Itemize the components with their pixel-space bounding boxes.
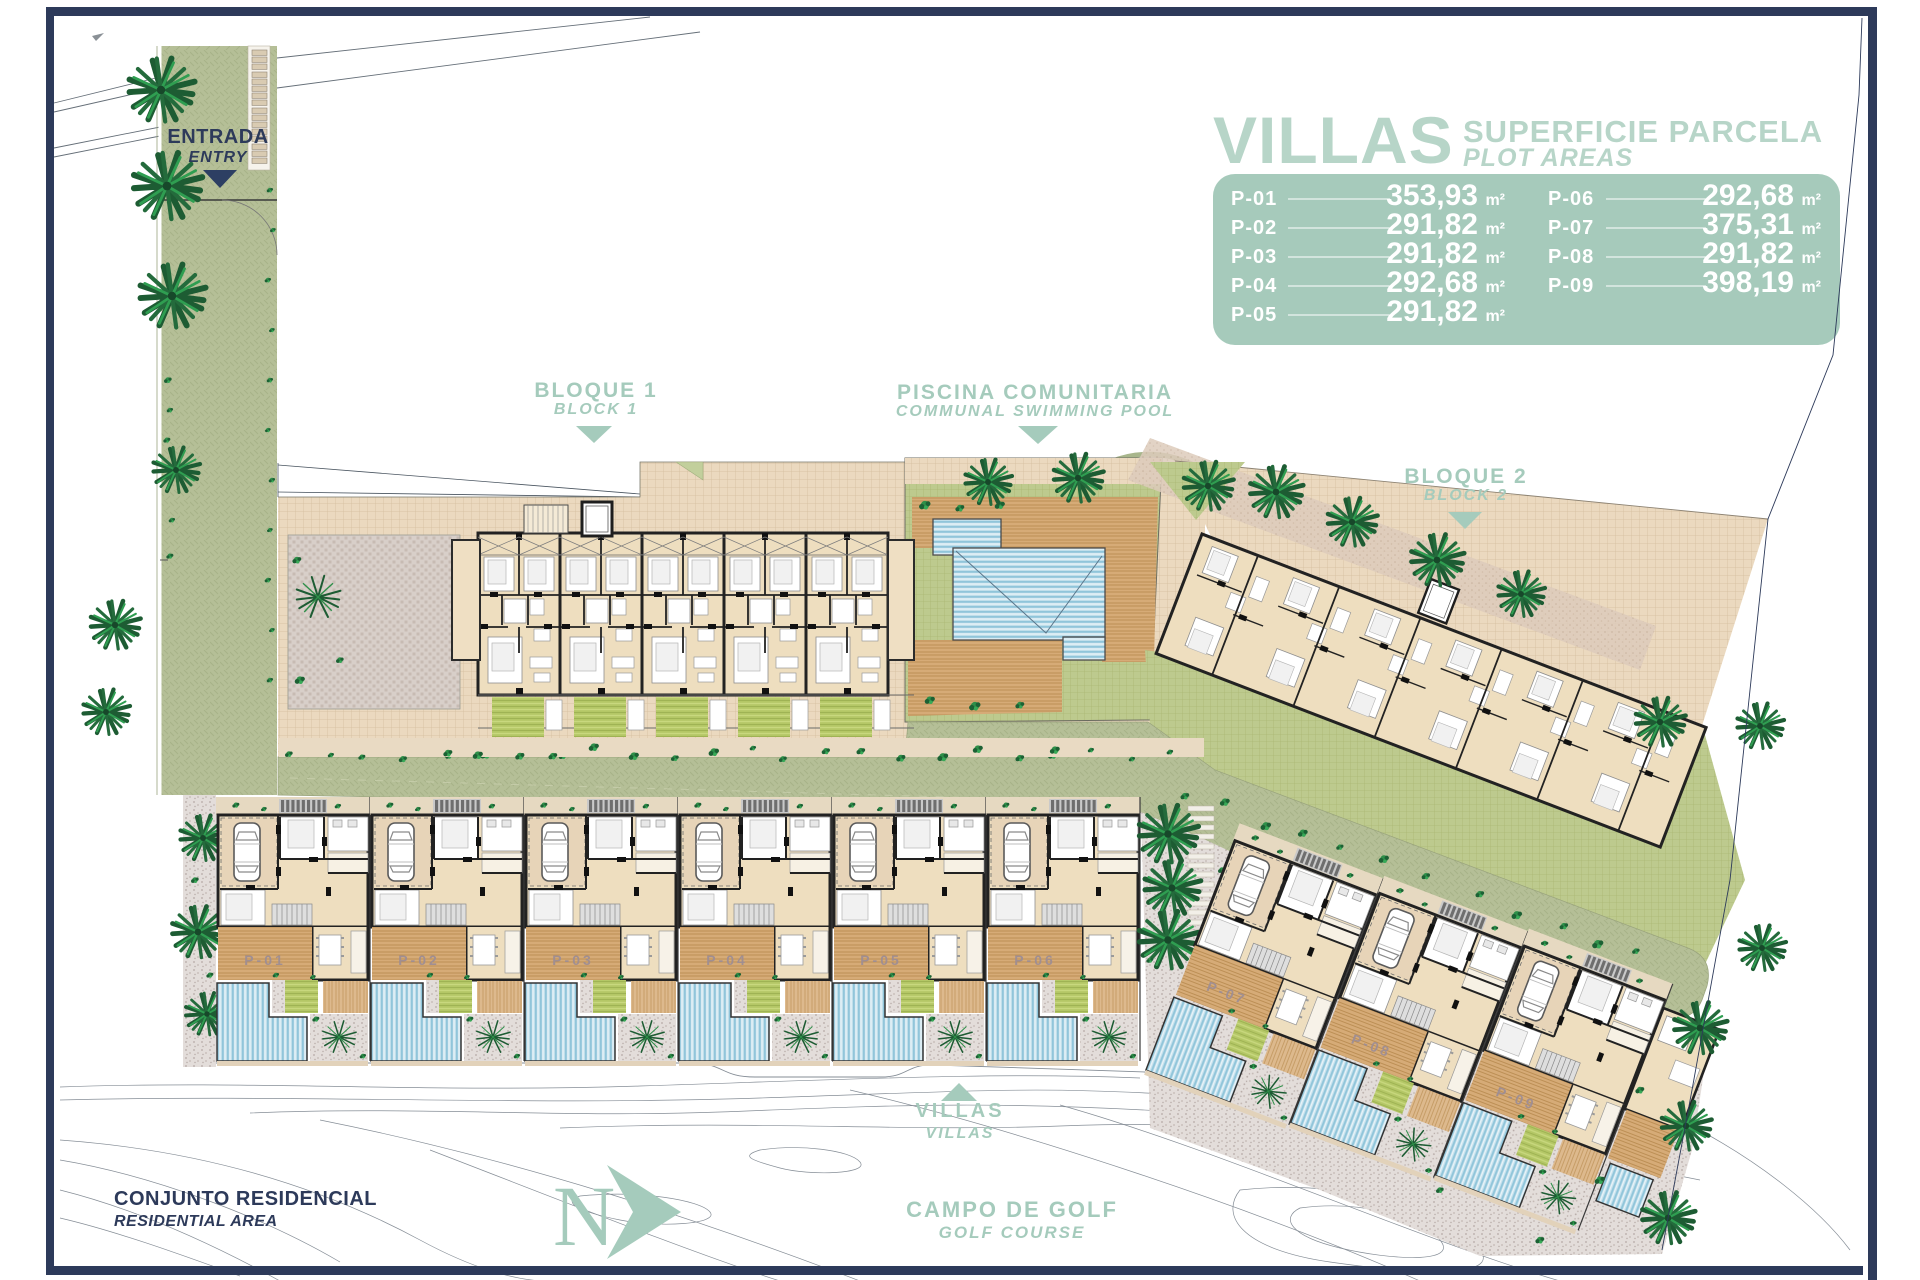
svg-text:m²: m²	[1485, 250, 1505, 267]
svg-text:BLOCK 2: BLOCK 2	[1424, 487, 1508, 504]
svg-text:P-07: P-07	[1548, 217, 1594, 239]
svg-text:RESIDENTIAL AREA: RESIDENTIAL AREA	[114, 1213, 278, 1230]
svg-text:BLOQUE 1: BLOQUE 1	[534, 379, 657, 402]
svg-text:VILLAS: VILLAS	[1213, 103, 1454, 177]
svg-text:m²: m²	[1485, 279, 1505, 296]
svg-text:P-05: P-05	[860, 952, 902, 968]
svg-text:VILLAS: VILLAS	[926, 1125, 995, 1142]
svg-text:VILLAS: VILLAS	[915, 1100, 1004, 1122]
svg-text:m²: m²	[1485, 308, 1505, 325]
svg-text:P-05: P-05	[1231, 304, 1277, 326]
svg-text:291,82: 291,82	[1386, 295, 1478, 328]
svg-text:m²: m²	[1801, 279, 1821, 296]
svg-text:P-06: P-06	[1014, 952, 1056, 968]
svg-text:398,19: 398,19	[1702, 266, 1794, 299]
svg-text:ENTRADA: ENTRADA	[167, 126, 268, 148]
svg-text:CAMPO DE GOLF: CAMPO DE GOLF	[906, 1197, 1118, 1222]
svg-text:P-04: P-04	[1231, 275, 1277, 297]
svg-text:m²: m²	[1801, 192, 1821, 209]
svg-text:P-02: P-02	[398, 952, 440, 968]
svg-text:PLOT AREAS: PLOT AREAS	[1463, 144, 1633, 172]
svg-text:P-06: P-06	[1548, 188, 1594, 210]
svg-text:m²: m²	[1801, 221, 1821, 238]
svg-text:CONJUNTO RESIDENCIAL: CONJUNTO RESIDENCIAL	[114, 1188, 377, 1210]
svg-text:P-01: P-01	[244, 952, 286, 968]
svg-text:P-04: P-04	[706, 952, 748, 968]
svg-text:BLOQUE 2: BLOQUE 2	[1404, 465, 1527, 488]
svg-text:BLOCK 1: BLOCK 1	[554, 401, 638, 418]
svg-text:P-03: P-03	[552, 952, 594, 968]
svg-text:m²: m²	[1485, 192, 1505, 209]
svg-text:N: N	[553, 1168, 615, 1264]
svg-text:P-08: P-08	[1548, 246, 1594, 268]
svg-text:COMMUNAL SWIMMING POOL: COMMUNAL SWIMMING POOL	[896, 403, 1174, 420]
svg-text:ENTRY: ENTRY	[189, 149, 248, 166]
svg-text:GOLF COURSE: GOLF COURSE	[939, 1223, 1086, 1242]
svg-text:m²: m²	[1485, 221, 1505, 238]
svg-text:P-09: P-09	[1548, 275, 1594, 297]
svg-text:P-03: P-03	[1231, 246, 1277, 268]
svg-text:P-01: P-01	[1231, 188, 1277, 210]
svg-text:PISCINA COMUNITARIA: PISCINA COMUNITARIA	[897, 381, 1173, 404]
svg-text:m²: m²	[1801, 250, 1821, 267]
svg-text:P-02: P-02	[1231, 217, 1277, 239]
